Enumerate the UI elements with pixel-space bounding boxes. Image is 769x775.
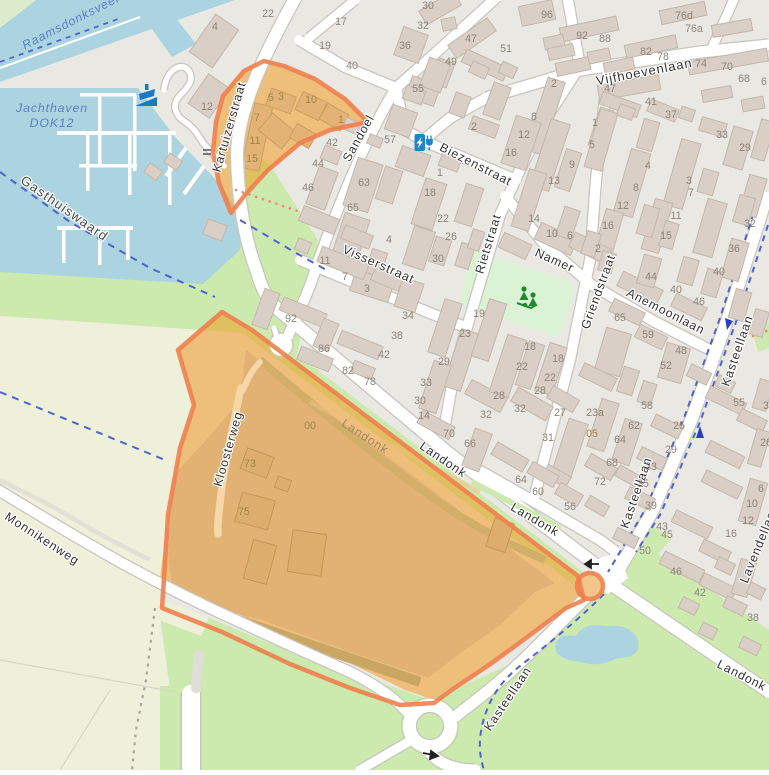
svg-text:16: 16	[505, 147, 517, 159]
svg-text:32: 32	[744, 218, 756, 230]
svg-text:49: 49	[445, 56, 457, 68]
svg-text:52: 52	[660, 360, 672, 372]
svg-text:29: 29	[739, 142, 751, 154]
svg-text:16: 16	[602, 220, 614, 232]
svg-text:10: 10	[305, 94, 317, 106]
svg-text:5: 5	[268, 92, 274, 104]
svg-text:7: 7	[688, 187, 694, 199]
svg-text:3: 3	[278, 91, 284, 103]
svg-text:44: 44	[645, 271, 657, 283]
svg-text:4: 4	[212, 21, 218, 33]
svg-text:3: 3	[686, 175, 692, 187]
svg-text:15: 15	[246, 153, 258, 165]
svg-text:36: 36	[728, 243, 740, 255]
svg-text:13: 13	[548, 175, 560, 187]
svg-text:76a: 76a	[685, 23, 703, 35]
svg-text:86: 86	[318, 343, 330, 355]
svg-text:42: 42	[694, 587, 706, 599]
svg-text:62: 62	[628, 420, 640, 432]
svg-text:40: 40	[346, 60, 358, 72]
svg-text:37: 37	[665, 109, 677, 121]
svg-text:72: 72	[594, 476, 606, 488]
svg-text:65: 65	[347, 202, 359, 214]
svg-text:42: 42	[326, 137, 338, 149]
svg-text:58: 58	[641, 400, 653, 412]
svg-text:00: 00	[304, 420, 316, 432]
svg-text:38: 38	[747, 612, 759, 624]
svg-text:6: 6	[567, 230, 573, 242]
svg-text:82: 82	[640, 46, 652, 58]
svg-text:29: 29	[438, 356, 450, 368]
svg-text:6: 6	[761, 76, 767, 88]
svg-text:2: 2	[551, 78, 557, 90]
svg-text:78: 78	[657, 51, 669, 63]
svg-text:7: 7	[342, 271, 348, 283]
svg-text:76d: 76d	[675, 10, 693, 22]
svg-text:12: 12	[617, 200, 629, 212]
svg-text:66: 66	[464, 438, 476, 450]
svg-text:11: 11	[671, 210, 682, 222]
svg-text:78: 78	[364, 376, 376, 388]
svg-text:55: 55	[412, 83, 424, 95]
svg-text:57: 57	[384, 134, 396, 146]
svg-text:23a: 23a	[586, 407, 604, 419]
svg-text:88: 88	[599, 33, 611, 45]
svg-text:4: 4	[645, 160, 651, 172]
svg-text:3: 3	[364, 283, 370, 295]
svg-text:22: 22	[262, 8, 274, 20]
svg-text:16: 16	[725, 528, 737, 540]
svg-text:36: 36	[399, 40, 411, 52]
svg-text:42: 42	[378, 349, 390, 361]
svg-text:Jachthaven: Jachthaven	[15, 101, 88, 115]
svg-text:56: 56	[564, 501, 576, 513]
svg-text:68: 68	[738, 73, 750, 85]
svg-text:74: 74	[695, 58, 707, 70]
svg-text:19: 19	[473, 308, 485, 320]
svg-text:22: 22	[544, 372, 556, 384]
svg-text:29: 29	[665, 444, 677, 456]
svg-text:35: 35	[637, 478, 649, 490]
svg-text:23: 23	[459, 328, 471, 340]
svg-text:8: 8	[531, 111, 537, 123]
svg-text:70: 70	[721, 61, 733, 73]
svg-text:30: 30	[414, 395, 426, 407]
svg-text:47: 47	[465, 33, 477, 45]
svg-text:27: 27	[554, 407, 566, 419]
svg-text:30: 30	[422, 0, 434, 12]
svg-text:9: 9	[569, 159, 575, 171]
svg-text:14: 14	[528, 213, 540, 225]
svg-text:82: 82	[342, 365, 354, 377]
svg-text:33: 33	[716, 129, 728, 141]
svg-text:10: 10	[546, 228, 558, 240]
svg-text:46: 46	[670, 566, 682, 578]
svg-text:12: 12	[518, 129, 530, 141]
svg-text:51: 51	[500, 43, 512, 55]
svg-text:3: 3	[763, 400, 769, 412]
svg-text:7: 7	[254, 112, 260, 124]
svg-text:18: 18	[524, 341, 536, 353]
svg-text:55: 55	[733, 397, 745, 409]
svg-text:46: 46	[693, 296, 705, 308]
svg-text:63: 63	[358, 177, 370, 189]
svg-text:32: 32	[480, 409, 492, 421]
svg-text:40: 40	[713, 266, 725, 278]
svg-text:1: 1	[338, 114, 344, 126]
svg-text:12: 12	[742, 515, 754, 527]
svg-text:33: 33	[645, 461, 657, 473]
svg-text:92: 92	[285, 313, 297, 325]
svg-text:12: 12	[201, 101, 213, 113]
svg-text:32: 32	[417, 20, 429, 32]
svg-text:31: 31	[542, 432, 554, 444]
svg-text:34: 34	[402, 310, 414, 322]
svg-text:1: 1	[437, 167, 443, 179]
svg-text:48: 48	[675, 345, 687, 357]
svg-text:5: 5	[589, 139, 595, 151]
svg-text:50: 50	[639, 545, 651, 557]
svg-text:38: 38	[391, 330, 403, 342]
svg-text:30: 30	[432, 253, 444, 265]
svg-text:05: 05	[586, 428, 598, 440]
svg-text:60: 60	[532, 486, 544, 498]
svg-text:70: 70	[443, 428, 455, 440]
svg-text:64: 64	[614, 434, 626, 446]
svg-text:4: 4	[386, 234, 392, 246]
svg-text:45: 45	[661, 529, 673, 541]
svg-text:26: 26	[760, 437, 769, 449]
svg-text:47: 47	[604, 83, 616, 95]
svg-text:19: 19	[319, 40, 331, 52]
svg-text:46: 46	[302, 182, 314, 194]
svg-text:41: 41	[645, 96, 657, 108]
svg-text:22: 22	[516, 361, 528, 373]
svg-text:14: 14	[418, 410, 430, 422]
svg-text:92: 92	[576, 30, 588, 42]
svg-text:40: 40	[670, 284, 682, 296]
svg-text:25: 25	[673, 420, 685, 432]
svg-text:15: 15	[660, 230, 672, 242]
svg-text:32: 32	[514, 403, 526, 415]
svg-text:65: 65	[614, 312, 626, 324]
svg-text:64: 64	[515, 474, 527, 486]
svg-text:8: 8	[633, 182, 639, 194]
svg-text:68: 68	[606, 457, 618, 469]
svg-text:75: 75	[238, 506, 250, 518]
svg-text:10: 10	[746, 498, 758, 510]
svg-text:6: 6	[758, 483, 764, 495]
svg-text:26: 26	[445, 231, 457, 243]
svg-text:18: 18	[424, 187, 436, 199]
svg-text:73: 73	[244, 458, 256, 470]
svg-text:11: 11	[250, 135, 261, 147]
svg-text:2: 2	[471, 121, 477, 133]
svg-text:DOK12: DOK12	[30, 116, 75, 130]
svg-text:22: 22	[437, 213, 449, 225]
svg-text:33: 33	[420, 377, 432, 389]
svg-text:39: 39	[645, 500, 657, 512]
svg-text:1: 1	[592, 117, 598, 129]
svg-text:44: 44	[312, 158, 324, 170]
svg-text:96: 96	[541, 9, 553, 21]
svg-text:28: 28	[493, 390, 505, 402]
svg-text:2: 2	[595, 243, 601, 255]
svg-text:18: 18	[552, 353, 564, 365]
svg-text:28: 28	[534, 385, 546, 397]
svg-text:59: 59	[642, 329, 654, 341]
svg-text:17: 17	[335, 16, 347, 28]
svg-text:11: 11	[320, 255, 331, 267]
